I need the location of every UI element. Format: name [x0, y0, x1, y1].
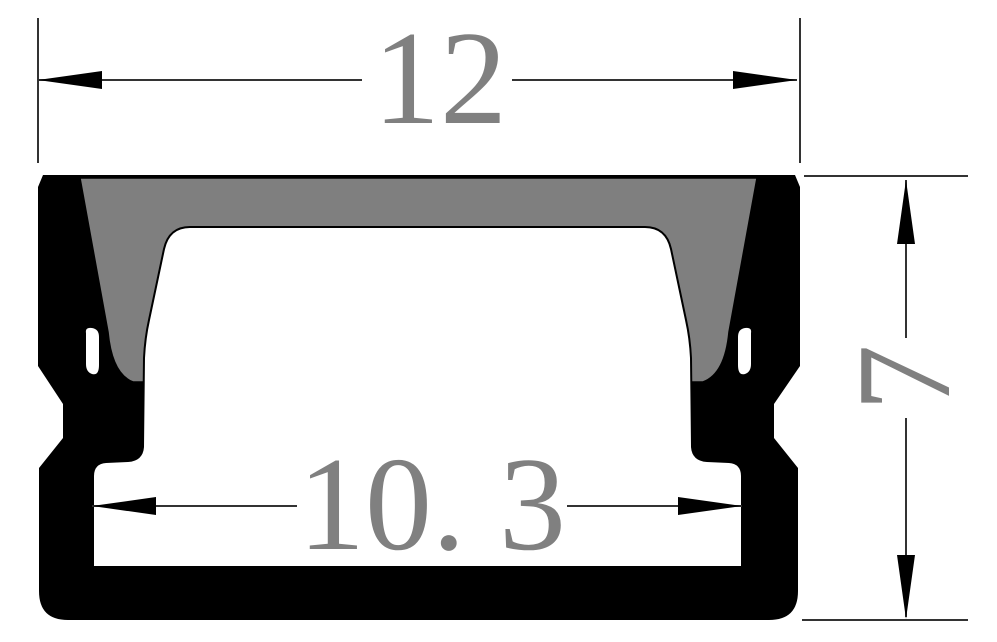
- drawing-canvas: 12 10. 3 7: [0, 0, 997, 642]
- dimension-label-height: 7: [830, 345, 978, 412]
- dimension-arrow-right: [733, 71, 797, 89]
- right-clip-slot: [738, 328, 751, 374]
- dimension-arrow-up: [897, 180, 915, 244]
- dimension-label-width: 12: [373, 4, 507, 152]
- dimension-arrow-down: [897, 555, 915, 619]
- left-clip-slot: [86, 328, 99, 374]
- dimension-arrow-left: [38, 71, 102, 89]
- profile-cross-section-drawing: 12 10. 3 7: [0, 0, 997, 642]
- dimension-width-top: 12: [38, 4, 800, 163]
- dimension-height: 7: [802, 176, 978, 620]
- dimension-label-inner-width: 10. 3: [298, 430, 566, 578]
